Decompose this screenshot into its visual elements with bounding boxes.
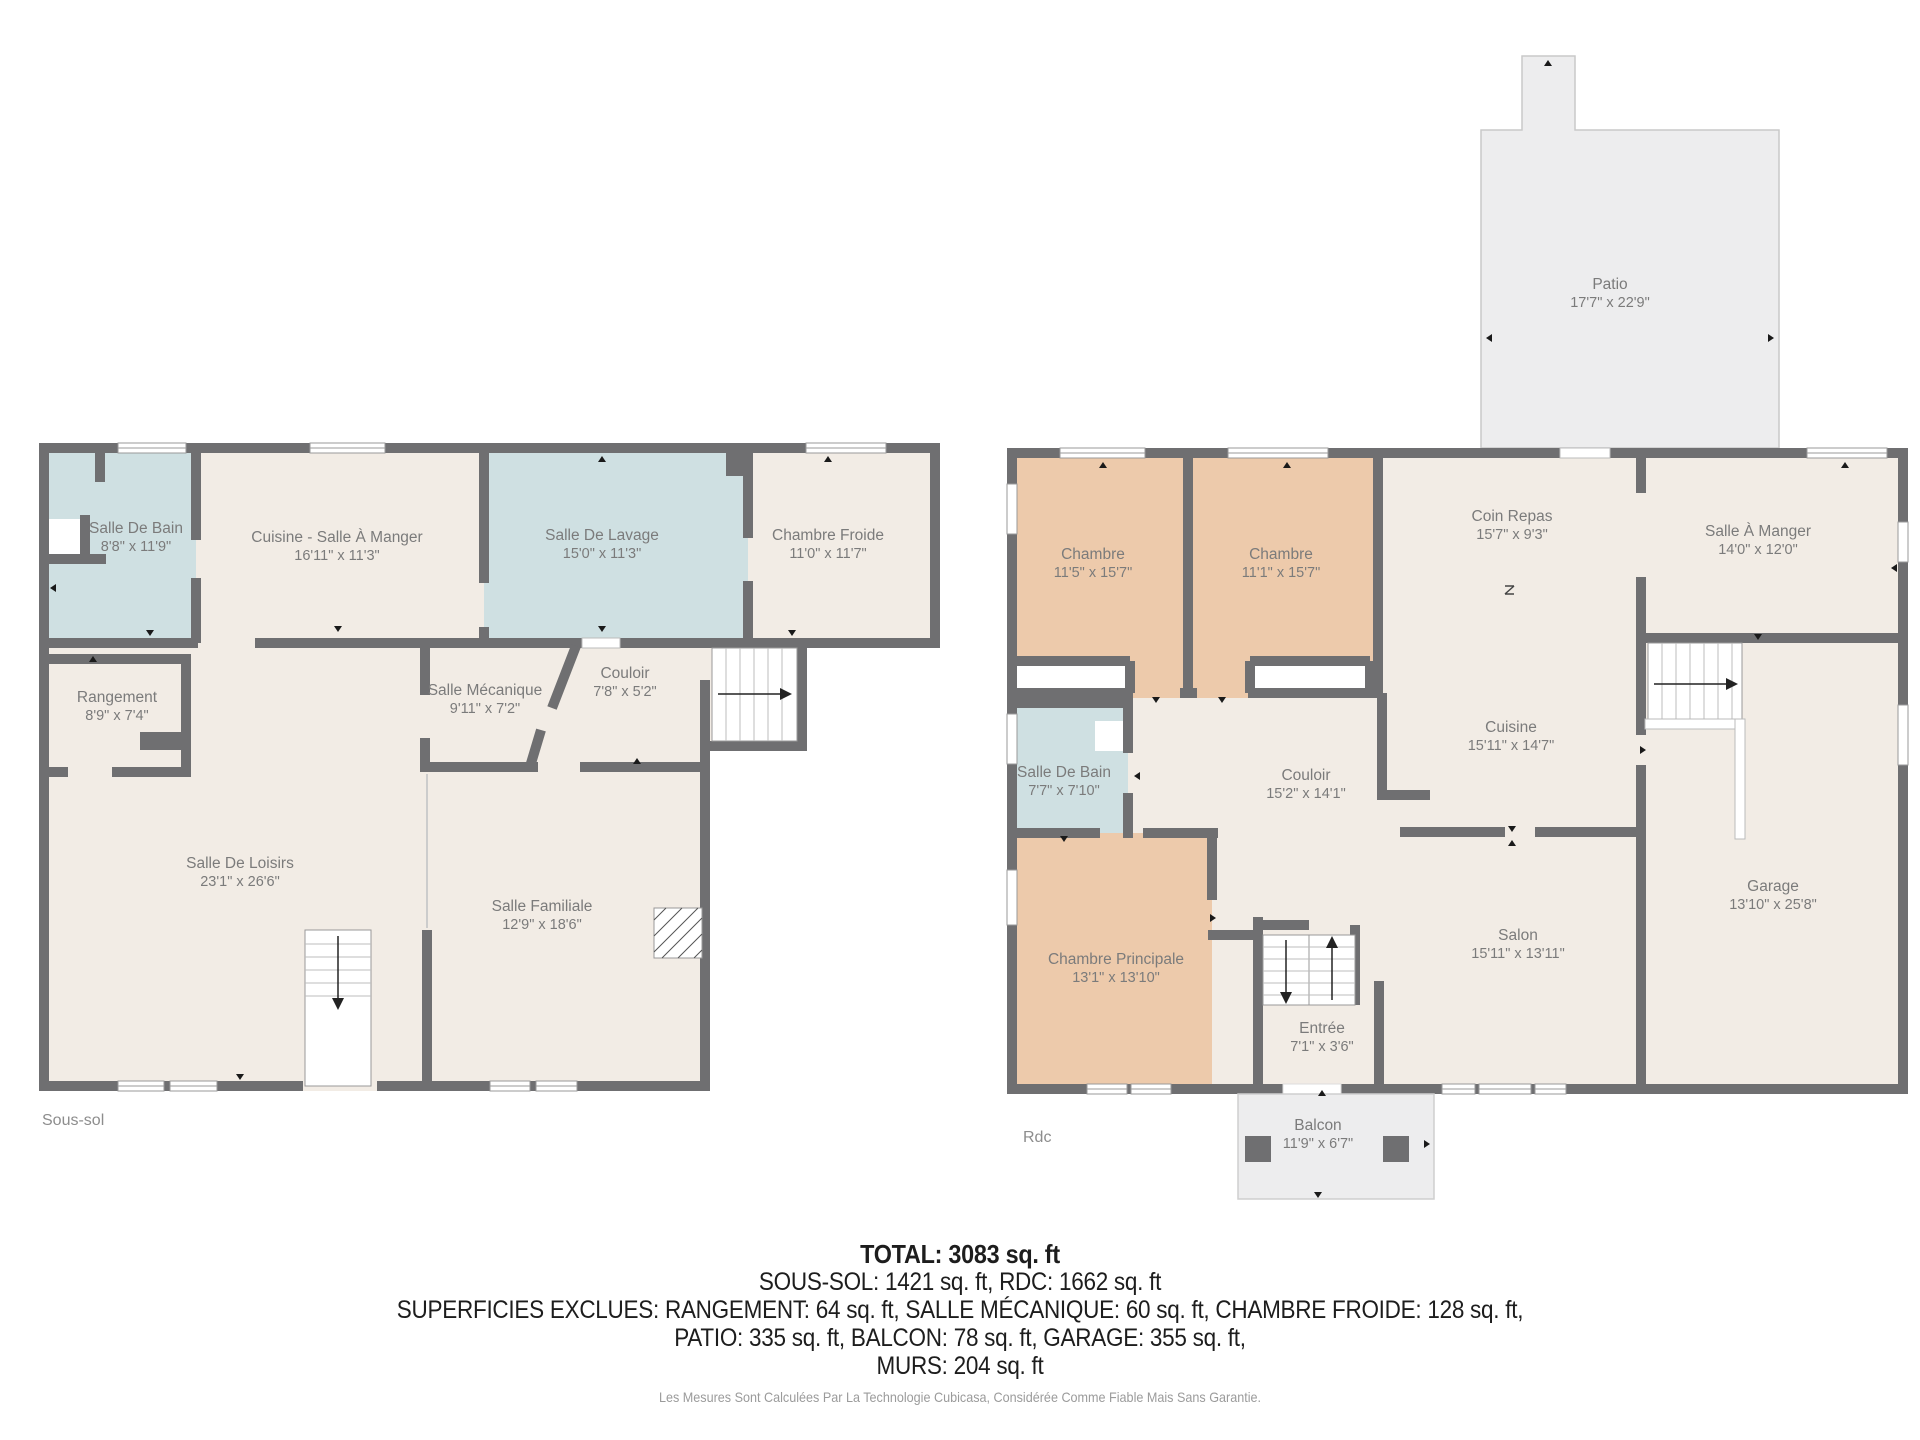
floor-label-rdc: Rdc (1023, 1129, 1051, 1147)
summary-total: TOTAL: 3083 sq. ft (96, 1240, 1824, 1268)
floor-label-sous-sol: Sous-sol (42, 1112, 104, 1130)
patio-outline (1481, 56, 1779, 448)
summary-excluded-areas-1: SUPERFICIES EXCLUES: RANGEMENT: 64 sq. f… (96, 1296, 1824, 1324)
floor-plan-page: Salle De Bain 8'8" x 11'9" Cuisine - Sal… (0, 0, 1920, 1440)
stairs-sous-sol-down (305, 930, 371, 1086)
summary-floor-areas: SOUS-SOL: 1421 sq. ft, RDC: 1662 sq. ft (96, 1268, 1824, 1296)
balcon-deck (1238, 1094, 1434, 1199)
stairs-sous-sol-up (712, 648, 797, 741)
floorplan-sous-sol (36, 440, 946, 1095)
summary-excluded-areas-2: PATIO: 335 sq. ft, BALCON: 78 sq. ft, GA… (96, 1324, 1824, 1352)
floorplan-rdc (1000, 50, 1920, 1205)
chimney-hatch (654, 908, 702, 958)
stairs-rdc-center (1263, 935, 1355, 1005)
measurement-disclaimer: Les Mesures Sont Calculées Par La Techno… (96, 1389, 1824, 1405)
summary-walls-area: MURS: 204 sq. ft (96, 1352, 1824, 1380)
summary-footer: TOTAL: 3083 sq. ft SOUS-SOL: 1421 sq. ft… (96, 1240, 1824, 1405)
